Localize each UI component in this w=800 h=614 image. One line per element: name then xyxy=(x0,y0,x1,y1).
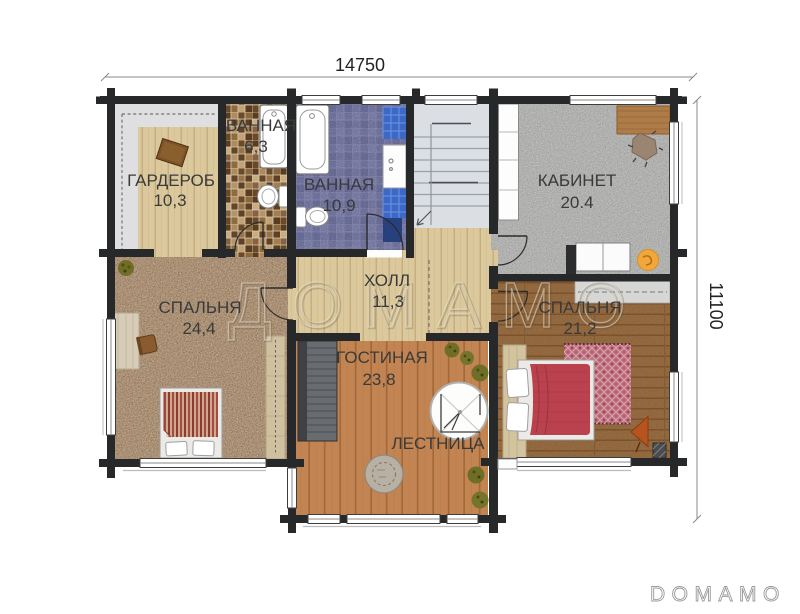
svg-text:20.4: 20.4 xyxy=(560,193,593,212)
svg-text:14750: 14750 xyxy=(335,55,385,75)
svg-text:ХОЛЛ: ХОЛЛ xyxy=(364,271,410,290)
svg-text:DOMAMO: DOMAMO xyxy=(650,583,786,606)
svg-text:ВАННАЯ: ВАННАЯ xyxy=(304,175,374,194)
svg-text:ВАННАЯ: ВАННАЯ xyxy=(226,116,296,135)
svg-text:23,8: 23,8 xyxy=(362,370,395,389)
svg-text:ГОСТИНАЯ: ГОСТИНАЯ xyxy=(336,348,428,367)
svg-text:КАБИНЕТ: КАБИНЕТ xyxy=(538,171,617,190)
svg-text:6,3: 6,3 xyxy=(244,137,268,156)
svg-text:24,4: 24,4 xyxy=(182,319,215,338)
svg-text:ГАРДЕРОБ: ГАРДЕРОБ xyxy=(127,171,215,190)
svg-text:ЛЕСТНИЦА: ЛЕСТНИЦА xyxy=(391,434,485,453)
svg-text:21,2: 21,2 xyxy=(563,319,596,338)
svg-text:11,3: 11,3 xyxy=(372,292,404,311)
svg-text:СПАЛЬНЯ: СПАЛЬНЯ xyxy=(538,298,621,317)
svg-text:10,9: 10,9 xyxy=(322,196,355,215)
svg-text:10,3: 10,3 xyxy=(153,191,186,210)
svg-text:11100: 11100 xyxy=(706,282,726,329)
svg-text:СПАЛЬНЯ: СПАЛЬНЯ xyxy=(158,298,241,317)
